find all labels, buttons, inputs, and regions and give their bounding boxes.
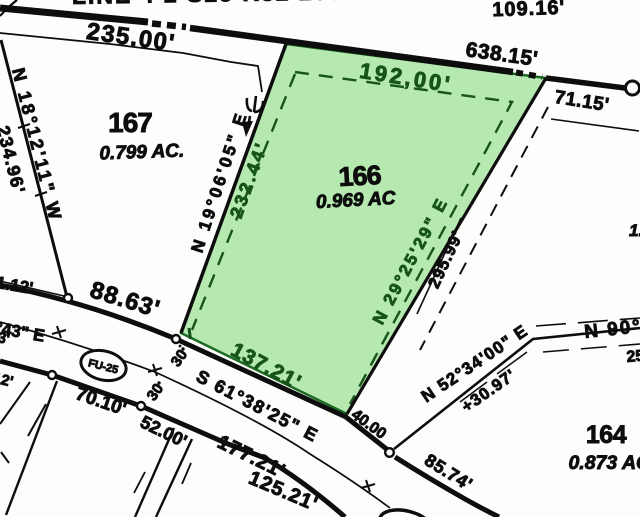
svg-text:166: 166 [338, 160, 383, 192]
svg-text:109.16': 109.16' [492, 0, 566, 21]
svg-text:167: 167 [108, 107, 152, 138]
svg-text:164: 164 [586, 421, 627, 449]
svg-text:0.969 AC: 0.969 AC [315, 188, 396, 213]
svg-text:25': 25' [626, 347, 640, 366]
svg-text:0.799 AC.: 0.799 AC. [99, 141, 185, 165]
svg-text:0.873 AC.: 0.873 AC. [568, 452, 640, 474]
svg-text:1.: 1. [629, 221, 640, 240]
